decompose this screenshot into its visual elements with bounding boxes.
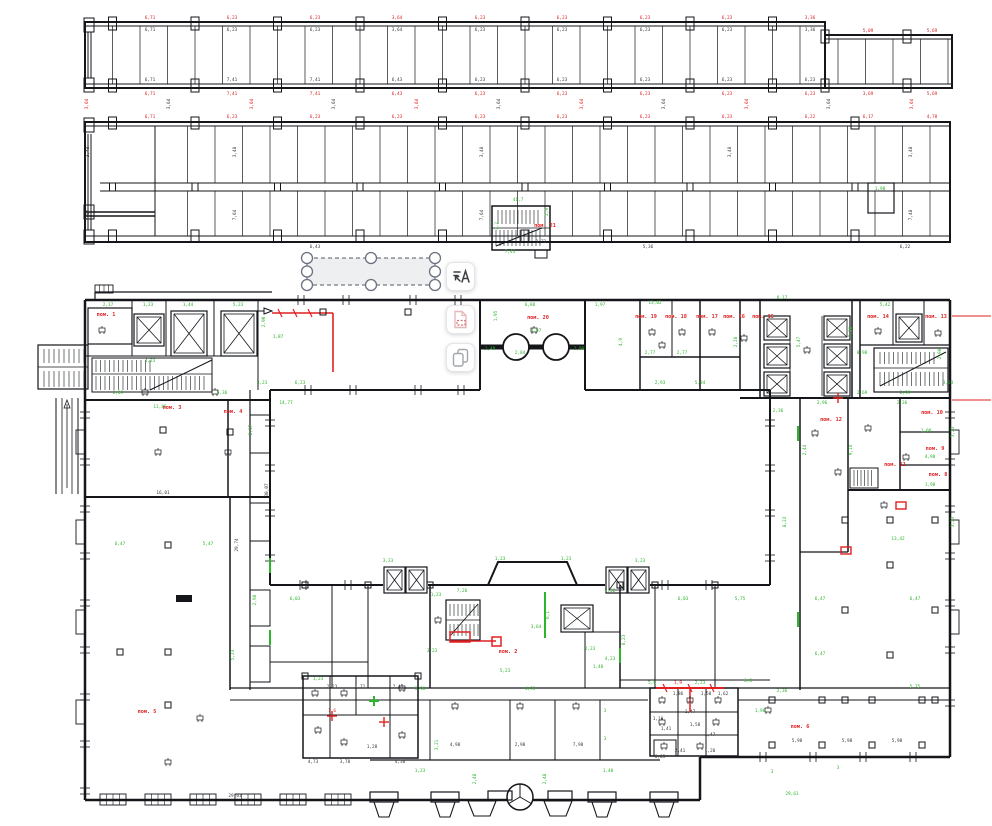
plan-geometry	[896, 502, 906, 509]
dim-label: 3,36	[805, 27, 816, 33]
dim-label: 1,71	[355, 684, 366, 690]
dim-label: 1,23	[415, 768, 426, 774]
room-label: пом. 3	[163, 405, 182, 411]
plan-geometry	[315, 728, 321, 732]
selection-handle[interactable]	[366, 253, 377, 264]
plan-geometry	[264, 308, 272, 314]
dim-label: 2,98	[252, 594, 258, 605]
plan-geometry	[715, 698, 721, 702]
dim-label: 6,03	[290, 596, 301, 602]
plan-geometry	[165, 542, 171, 548]
dim-label: 1,23	[495, 556, 506, 562]
dim-label: 6,23	[475, 91, 486, 97]
selection-handle[interactable]	[302, 280, 313, 291]
dim-label: 2,98	[515, 742, 526, 748]
room-label: пом. 13	[925, 314, 947, 320]
dim-label: 5,09	[863, 28, 874, 34]
plan-geometry	[435, 802, 455, 817]
dim-label: 7,41	[227, 91, 238, 97]
room-label: пом. 17	[696, 314, 718, 320]
plan-geometry	[548, 791, 572, 800]
dim-label: 6,0	[744, 678, 752, 684]
dim-label: 16,01	[156, 490, 170, 496]
dim-label: 6,71	[145, 114, 156, 120]
plan-geometry	[842, 607, 848, 613]
plan-geometry	[165, 649, 171, 655]
dim-label: 3,23	[257, 380, 268, 386]
dim-label: 3	[837, 765, 840, 771]
dim-label: 7,43	[505, 249, 516, 255]
room-label: пом. 20	[527, 315, 549, 321]
plan-geometry	[887, 562, 893, 568]
plan-geometry	[165, 760, 171, 764]
dim-label: 1,48	[593, 664, 604, 670]
dim-label: 5,75	[910, 684, 921, 690]
dim-label: 6,23	[227, 15, 238, 21]
dim-label: 3,64	[661, 98, 667, 109]
dim-label: 5,69	[927, 28, 938, 34]
plan-geometry	[852, 183, 858, 191]
dim-label: 3,48	[232, 146, 238, 157]
dim-label: 3	[604, 708, 607, 714]
dim-label: 3,48	[727, 146, 733, 157]
dim-label: 1,98	[574, 346, 585, 352]
room-label: пом. 14	[867, 314, 889, 320]
dim-label: 6,23	[621, 634, 627, 645]
dim-label: 4,9	[618, 338, 624, 346]
dim-label: 4,78	[927, 114, 938, 120]
dim-label: 1,44	[183, 302, 194, 308]
plan-geometry	[865, 426, 871, 430]
room-label: пом. 1	[97, 312, 116, 318]
dim-label: 6,23	[722, 114, 733, 120]
dim-label: 6,23	[295, 380, 306, 386]
dim-label: 5,47	[203, 541, 214, 547]
dim-label: 3,64	[84, 98, 90, 109]
selection-handle[interactable]	[366, 280, 377, 291]
plan-geometry	[741, 336, 747, 340]
dim-label: 6,22	[805, 114, 816, 120]
dim-label: 6,23	[557, 27, 568, 33]
plan-geometry	[661, 744, 667, 748]
dim-label: 6,47	[115, 541, 126, 547]
dim-label: 1,47	[705, 732, 716, 738]
room-label: пом. 10	[921, 410, 943, 416]
dim-label: 3,64	[331, 98, 337, 109]
dim-label: 1,87	[273, 334, 284, 340]
dim-label: 6,71	[145, 77, 156, 83]
dim-label: 5,98	[892, 738, 903, 744]
dim-label: 4,98	[450, 742, 461, 748]
dim-label: 2,69	[857, 390, 868, 396]
dim-label: 1,50	[701, 691, 712, 697]
dim-label: 2,93	[655, 380, 666, 386]
dim-label: 3,48	[908, 146, 914, 157]
dim-label: 2,36	[773, 408, 784, 414]
dim-label: 6,23	[227, 27, 238, 33]
dim-label: 3,2	[494, 222, 500, 230]
plan-geometry	[654, 802, 674, 817]
plan-geometry	[887, 652, 893, 658]
dim-label: 6,22	[900, 244, 911, 250]
dim-label: 1,48	[603, 768, 614, 774]
plan-geometry	[76, 430, 85, 454]
dim-label: 2,77	[677, 350, 688, 356]
dim-label: 5,0	[648, 680, 656, 686]
room-label: пом. 4	[224, 409, 243, 415]
plan-geometry-layer	[38, 17, 991, 817]
dim-label: 29,61	[785, 791, 799, 797]
dim-label: 6,23	[805, 91, 816, 97]
plan-geometry	[275, 183, 281, 191]
dim-label: 6,47	[815, 596, 826, 602]
dim-label: 6,71	[145, 91, 156, 97]
dim-label: 4,73	[308, 759, 319, 765]
plan-geometry	[950, 610, 959, 634]
dim-label: 0,98	[857, 350, 868, 356]
plan-geometry	[250, 503, 270, 541]
selection-handle[interactable]	[302, 253, 313, 264]
plan-geometry	[117, 649, 123, 655]
dim-label: 3,64	[579, 98, 585, 109]
dim-label: 5,98	[792, 738, 803, 744]
dim-label: 1,41	[661, 726, 672, 732]
dim-label: 1,95	[493, 310, 499, 321]
highlight-region-button[interactable]	[446, 305, 475, 334]
plan-geometry	[769, 742, 775, 748]
dim-label: 4,38	[395, 759, 406, 765]
dim-label: 6,71	[145, 15, 156, 21]
dim-label: 7,64	[85, 209, 91, 220]
dim-label: 2,9	[544, 208, 550, 216]
dim-label: 1,23	[313, 676, 324, 682]
selection-box[interactable]	[302, 253, 441, 291]
dim-label: 29,61	[228, 793, 242, 799]
dim-label: 7,41	[310, 77, 321, 83]
plan-geometry	[880, 352, 946, 386]
dim-label: 2,44	[802, 444, 808, 455]
dim-label: 7,41	[310, 91, 321, 97]
dim-label: 1,98	[875, 186, 886, 192]
plan-geometry	[468, 801, 496, 816]
dim-label: 6,47	[910, 596, 921, 602]
dim-label: 9,14	[848, 444, 854, 455]
plan-geometry	[709, 330, 715, 334]
plan-geometry	[875, 329, 881, 333]
plan-geometry	[887, 517, 893, 523]
dim-label: 3,64	[392, 27, 403, 33]
plan-geometry	[935, 331, 941, 335]
dim-label: 6,71	[145, 27, 156, 33]
dim-label: 7,64	[232, 209, 238, 220]
dim-label: 6,23	[805, 77, 816, 83]
plan-geometry	[435, 618, 441, 622]
room-label: пом. 8	[929, 472, 948, 478]
dim-label: 8,17	[777, 295, 788, 301]
dim-label: 2,36	[777, 688, 788, 694]
dim-label: 7,98	[573, 742, 584, 748]
dim-label: 1,23	[431, 592, 442, 598]
dim-label: 3,48	[85, 146, 91, 157]
plan-geometry	[659, 343, 665, 347]
dim-label: 3,23	[950, 516, 956, 527]
dim-label: 7,38	[848, 326, 854, 337]
dim-label: 5,47	[796, 336, 802, 347]
room-label: пом. 2	[499, 649, 518, 655]
dim-label: 1,47	[685, 709, 696, 715]
plan-geometry	[160, 427, 166, 433]
plan-geometry	[592, 802, 612, 817]
copy-icon	[448, 346, 473, 369]
plan-geometry	[770, 183, 776, 191]
dim-label: 2,36	[897, 400, 908, 406]
dim-label: 1,23	[561, 556, 572, 562]
dim-label: 5,36	[643, 244, 654, 250]
dim-label: 3,64	[249, 98, 255, 109]
plan-geometry	[713, 720, 719, 724]
dim-label: 6,23	[722, 91, 733, 97]
selection-handle[interactable]	[430, 253, 441, 264]
dim-label: 6,23	[392, 114, 403, 120]
dim-label: 5,23	[233, 302, 244, 308]
dim-label: 3,23	[427, 648, 438, 654]
dim-label: 6,23	[722, 15, 733, 21]
dim-label: 2,96	[817, 400, 828, 406]
dim-label: 1,97	[595, 302, 606, 308]
dim-label: 7,64	[479, 209, 485, 220]
room-label: пом. 9	[926, 446, 945, 452]
plan-geometry	[903, 30, 911, 43]
plan-geometry	[76, 520, 85, 544]
room-label: пом. 15	[752, 314, 774, 320]
dim-label: 29,74	[234, 538, 240, 552]
dim-label: 3,64	[531, 624, 542, 630]
dim-label: 2,77	[645, 350, 656, 356]
plan-geometry	[197, 716, 203, 720]
dim-label: 1,48	[485, 346, 496, 352]
dim-label: 6,23	[475, 77, 486, 83]
dim-label: 3,23	[950, 426, 956, 437]
dim-label: 4,98	[925, 454, 936, 460]
dim-label: 2,17	[103, 302, 114, 308]
page-red-dashed-icon	[448, 308, 473, 331]
dim-label: 2,23	[585, 646, 596, 652]
dim-label: 5,23	[500, 668, 511, 674]
plan-geometry	[488, 562, 577, 585]
dim-label: 6,47	[815, 651, 826, 657]
dim-label: 6,23	[475, 114, 486, 120]
plan-geometry	[659, 698, 665, 702]
recognize-text-button[interactable]	[446, 262, 475, 291]
dim-label: 2,41	[393, 684, 404, 690]
dim-label: 7,48	[908, 209, 914, 220]
plan-geometry	[697, 744, 703, 748]
dim-label: 14,77	[279, 400, 293, 406]
dim-label: 3,48	[479, 146, 485, 157]
dim-label: 1,6	[328, 708, 336, 714]
dim-label: 41,7	[513, 197, 524, 203]
plan-geometry	[374, 802, 394, 817]
dim-label: 3,64	[392, 15, 403, 21]
selection-handle[interactable]	[430, 280, 441, 291]
plan-geometry	[357, 183, 363, 191]
room-label: пом. 11	[884, 462, 906, 468]
dim-label: 5,34	[695, 380, 706, 386]
dim-label: 3,64	[744, 98, 750, 109]
dim-label: 1,9	[674, 680, 682, 686]
dim-label: 1,73	[536, 239, 547, 245]
dim-label: 6,17	[863, 114, 874, 120]
dim-label: 7,32	[605, 588, 616, 594]
dim-label: 5,23	[230, 649, 236, 660]
dim-label: 6,23	[557, 114, 568, 120]
dim-label: 1,98	[925, 482, 936, 488]
dim-label: 6,23	[310, 114, 321, 120]
dim-label: 1,10	[653, 716, 664, 722]
plan-geometry	[825, 35, 952, 88]
dim-label: 4,97	[531, 328, 542, 334]
dim-label: 6,43	[392, 77, 403, 83]
room-label: пом. 6	[791, 724, 810, 730]
plan-geometry	[687, 183, 693, 191]
dim-label: 5,42	[880, 302, 891, 308]
dim-label: 4,23	[145, 358, 156, 364]
dim-label: 6,23	[722, 77, 733, 83]
room-label: пом. 16	[723, 314, 745, 320]
room-label: пом. 18	[665, 314, 687, 320]
dim-label: 3,23	[635, 558, 646, 564]
dim-label: 2,99	[900, 390, 911, 396]
dim-label: 1,58	[690, 722, 701, 728]
dim-label: 5,69	[927, 91, 938, 97]
plan-geometry	[320, 309, 326, 315]
room-label: пом. 21	[534, 223, 556, 229]
selection-handle[interactable]	[430, 266, 441, 277]
room-label: пом. 5	[138, 709, 157, 715]
plan-geometry	[812, 431, 818, 435]
dim-label: 13,02	[648, 300, 662, 306]
plan-geometry	[76, 700, 85, 724]
dim-label: 7,41	[227, 77, 238, 83]
plan-geometry	[522, 183, 528, 191]
plan-geometry	[932, 517, 938, 523]
dim-label: 13,42	[891, 536, 905, 542]
dim-label: 2,48	[472, 773, 478, 784]
dim-label: 2,23	[327, 684, 338, 690]
dim-label: 3	[604, 736, 607, 742]
plan-geometry	[544, 801, 572, 816]
plan-geometry	[842, 517, 848, 523]
dim-label: 1,23	[143, 302, 154, 308]
dim-label: 2,90	[261, 316, 267, 327]
dim-label: 6,03	[655, 754, 666, 760]
dim-label: 5,98	[415, 686, 426, 692]
plan-geometry	[869, 742, 875, 748]
dim-label: 3,64	[166, 98, 172, 109]
plan-geometry	[110, 183, 116, 191]
dim-label: 6,23	[475, 15, 486, 21]
plan-geometry	[452, 704, 458, 708]
plan-geometry	[250, 646, 270, 682]
plan-geometry	[903, 79, 911, 92]
dim-label: 4,23	[605, 656, 616, 662]
selection-handle[interactable]	[302, 266, 313, 277]
dim-label: 3,64	[496, 98, 502, 109]
dim-label: 4,98	[525, 686, 536, 692]
plan-geometry	[804, 348, 810, 352]
plan-geometry	[440, 183, 446, 191]
plan-geometry	[503, 334, 529, 360]
dim-label: 3,64	[826, 98, 832, 109]
dim-label: 3,69	[863, 91, 874, 97]
dim-label: 6,88	[525, 302, 536, 308]
dim-label: 6,23	[640, 114, 651, 120]
dim-label: 1,20	[705, 748, 716, 754]
room-label: пом. 19	[635, 314, 657, 320]
dim-label: 6,23	[640, 27, 651, 33]
plan-geometry	[99, 328, 105, 332]
plan-geometry	[881, 503, 887, 507]
plan-geometry	[312, 691, 318, 695]
plan-geometry	[765, 708, 771, 712]
plan-geometry	[399, 733, 405, 737]
dim-label: 5,75	[735, 596, 746, 602]
plan-geometry	[341, 740, 347, 744]
dim-label: 6,23	[310, 15, 321, 21]
dim-label: 3,64	[909, 98, 915, 109]
plan-geometry	[819, 742, 825, 748]
plan-geometry	[903, 455, 909, 459]
duplicate-layer-button[interactable]	[446, 343, 475, 372]
dim-label: 3,36	[805, 15, 816, 21]
dim-label: 1,62	[718, 691, 729, 697]
floor-plan-canvas[interactable]: 6,716,236,233,646,236,236,236,233,365,09…	[0, 0, 992, 826]
plan-geometry	[841, 547, 851, 554]
plan-geometry	[543, 334, 569, 360]
dim-label: 6,43	[392, 91, 403, 97]
dim-label: 3,23	[943, 380, 954, 386]
dim-label: 5,36	[217, 390, 228, 396]
dim-label: 6,23	[557, 91, 568, 97]
dim-label: 6,1	[545, 611, 551, 619]
plan-geometry	[517, 704, 523, 708]
dim-label: 2,28	[733, 336, 739, 347]
dim-label: 6,23	[640, 77, 651, 83]
plan-geometry	[192, 183, 198, 191]
dim-label: 6,23	[722, 27, 733, 33]
dim-label: 6,23	[310, 27, 321, 33]
dim-label: 2,17	[248, 424, 254, 435]
dim-label: 30,07	[264, 483, 270, 497]
plan-geometry	[919, 742, 925, 748]
dim-label: 6,23	[475, 27, 486, 33]
plan-geometry	[165, 702, 171, 708]
dim-label: 6,23	[557, 15, 568, 21]
dim-label: 5,98	[842, 738, 853, 744]
dim-label: 2,09	[113, 390, 124, 396]
plan-geometry	[85, 22, 825, 88]
dim-label: 6,23	[640, 15, 651, 21]
dim-label: 7,26	[457, 588, 468, 594]
plan-geometry	[573, 704, 579, 708]
plan-geometry	[835, 470, 841, 474]
dim-label: 1,86	[673, 691, 684, 697]
dim-label: 2,41	[675, 748, 686, 754]
plan-geometry	[605, 183, 611, 191]
plan-geometry	[155, 450, 161, 454]
plan-geometry	[679, 330, 685, 334]
plan-geometry	[341, 691, 347, 695]
